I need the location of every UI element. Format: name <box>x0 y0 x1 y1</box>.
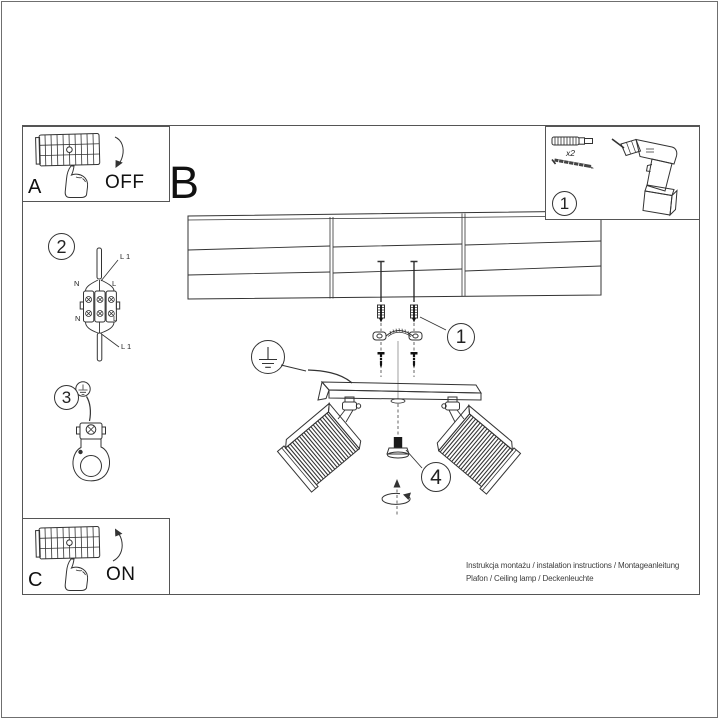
hand-icon <box>65 166 87 198</box>
quantity-label: x2 <box>566 149 575 158</box>
footer-text: Instrukcja montażu / instalation instruc… <box>466 559 679 585</box>
switch-on-label: ON <box>106 565 136 584</box>
step-number-1-bracket: 1 <box>447 323 475 351</box>
mounting-bracket <box>373 317 446 340</box>
drill-icon <box>612 139 677 215</box>
wire-label-n-top: N <box>74 280 79 288</box>
fuse-box-on-drawing <box>23 519 169 594</box>
lamp-joint <box>442 397 464 422</box>
leader-line <box>102 334 120 347</box>
wall-anchor-icon <box>378 305 385 323</box>
switch-off-label: OFF <box>105 173 145 192</box>
leader-line <box>281 365 306 371</box>
ceiling-lamp <box>275 382 523 517</box>
footer-line-2: Plafon / Ceiling lamp / Deckenleuchte <box>466 572 679 585</box>
ground-symbol-icon <box>252 341 307 374</box>
wire-label-l-top: L <box>112 280 116 288</box>
step-number-4: 4 <box>421 462 451 492</box>
terminal-block-wiring <box>80 248 120 361</box>
fixing-screws <box>378 352 418 369</box>
wire-label-l-bottom: L <box>113 315 117 323</box>
step-number-1-parts: 1 <box>552 191 577 216</box>
wire-label-n-bottom: N <box>75 315 80 323</box>
arrow-down-icon <box>115 137 123 168</box>
hand-icon <box>65 559 87 591</box>
wall-anchor-icon <box>411 305 418 323</box>
instruction-sheet: A OFF B <box>0 0 720 720</box>
fuse-box-off-drawing <box>23 127 169 201</box>
step-label-a: A <box>28 177 41 197</box>
screw-icon <box>552 160 594 169</box>
step-c-box: C ON <box>22 518 170 595</box>
wire-label-l1-top: L 1 <box>120 253 130 261</box>
footer-line-1: Instrukcja montażu / instalation instruc… <box>466 559 679 572</box>
section-label-b: B <box>169 160 199 205</box>
adjust-knob <box>387 404 422 468</box>
step-number-3: 3 <box>54 385 79 410</box>
step-number-2: 2 <box>48 233 75 260</box>
rotation-arrow-icon <box>382 479 411 517</box>
parts-box: x2 1 <box>545 126 700 220</box>
ceiling-panel <box>188 211 601 299</box>
step-a-box: A OFF <box>22 126 170 202</box>
spot-head-left <box>275 403 365 492</box>
wall-anchor-icon <box>552 137 593 145</box>
arrow-up-icon <box>113 529 122 562</box>
supply-wire <box>308 370 352 383</box>
wire-label-l1-bottom: L 1 <box>121 343 131 351</box>
leader-line <box>406 450 422 468</box>
breaker-panel-icon <box>36 526 100 559</box>
leader-line <box>420 317 446 330</box>
step-label-c: C <box>28 570 42 590</box>
breaker-panel-icon <box>36 133 100 166</box>
leader-line <box>101 260 118 281</box>
